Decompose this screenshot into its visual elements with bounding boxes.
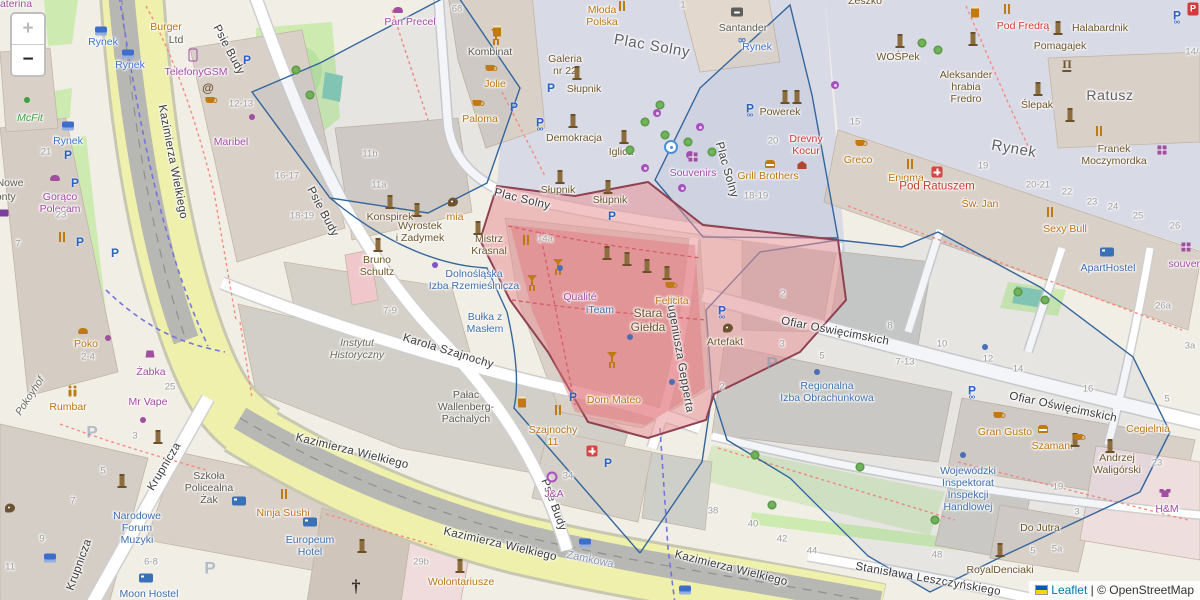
zoom-control: + −	[10, 12, 46, 77]
attribution-separator: |	[1091, 583, 1094, 597]
zoom-out-button[interactable]: −	[12, 45, 44, 75]
leaflet-link[interactable]: Leaflet	[1051, 583, 1087, 597]
attribution-bar: Leaflet | © OpenStreetMap	[1029, 581, 1200, 600]
zoom-in-button[interactable]: +	[12, 14, 44, 45]
map-tiles	[0, 0, 1200, 600]
ukraine-flag-icon	[1035, 585, 1048, 595]
map-canvas[interactable]: Kazimierza WielkiegoKazimierza Wielkiego…	[0, 0, 1200, 600]
openstreetmap-link[interactable]: © OpenStreetMap	[1097, 583, 1194, 597]
